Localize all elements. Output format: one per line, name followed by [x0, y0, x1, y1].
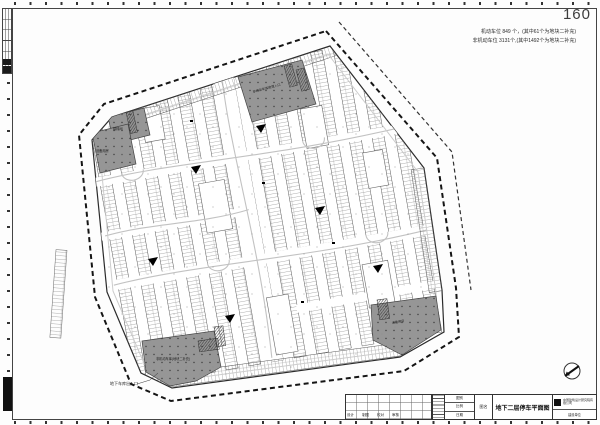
annotation-specks: [92, 46, 444, 388]
site-plan-drawing: 非机动车库坡道入口 设备用房 楼梯间 非机动车库(地块二补充) 设备用房: [0, 0, 600, 425]
drawing-title: 地下二层停车平面图: [495, 403, 549, 412]
plan-interior: 非机动车库坡道入口 设备用房 楼梯间 非机动车库(地块二补充) 设备用房: [76, 37, 448, 388]
title-block: 设计 制图 校对 审核 图别 比例 日期 图名 地下二层停车平面图 中国建筑设计…: [345, 394, 597, 420]
street-parking-ladder: [50, 250, 67, 339]
core-left-big-label: 设备用房: [96, 148, 109, 153]
meta-cells: 图别 比例 日期: [445, 395, 475, 419]
sign-label-draft: 制图: [362, 413, 369, 418]
signature-grid: 设计 制图 校对 审核: [346, 395, 432, 419]
sign-label-review: 审核: [392, 413, 399, 418]
core-left-small-label: 楼梯间: [113, 126, 123, 131]
company-cell: 中国建筑设计研究院有限公司 建设单位: [553, 395, 596, 419]
drawing-name-label: 图名: [480, 404, 488, 410]
meta-label-type: 图别: [456, 396, 463, 401]
meta-label-scale: 比例: [456, 404, 463, 409]
project-label: 建设单位: [568, 412, 581, 417]
north-symbol-icon: [564, 363, 580, 379]
sign-label-design: 设计: [347, 413, 354, 418]
drawing-name-label-cell: 图名: [475, 395, 493, 419]
revision-column: [432, 395, 445, 419]
core-bottom-left-label: 非机动车库(地块二补充): [156, 356, 190, 361]
meta-label-date: 日期: [456, 413, 463, 418]
company-logo-icon: [554, 399, 561, 406]
company-name: 中国建筑设计研究院有限公司: [563, 399, 595, 406]
sign-label-check: 校对: [377, 413, 384, 418]
drawing-title-cell: 地下二层停车平面图: [493, 395, 553, 419]
